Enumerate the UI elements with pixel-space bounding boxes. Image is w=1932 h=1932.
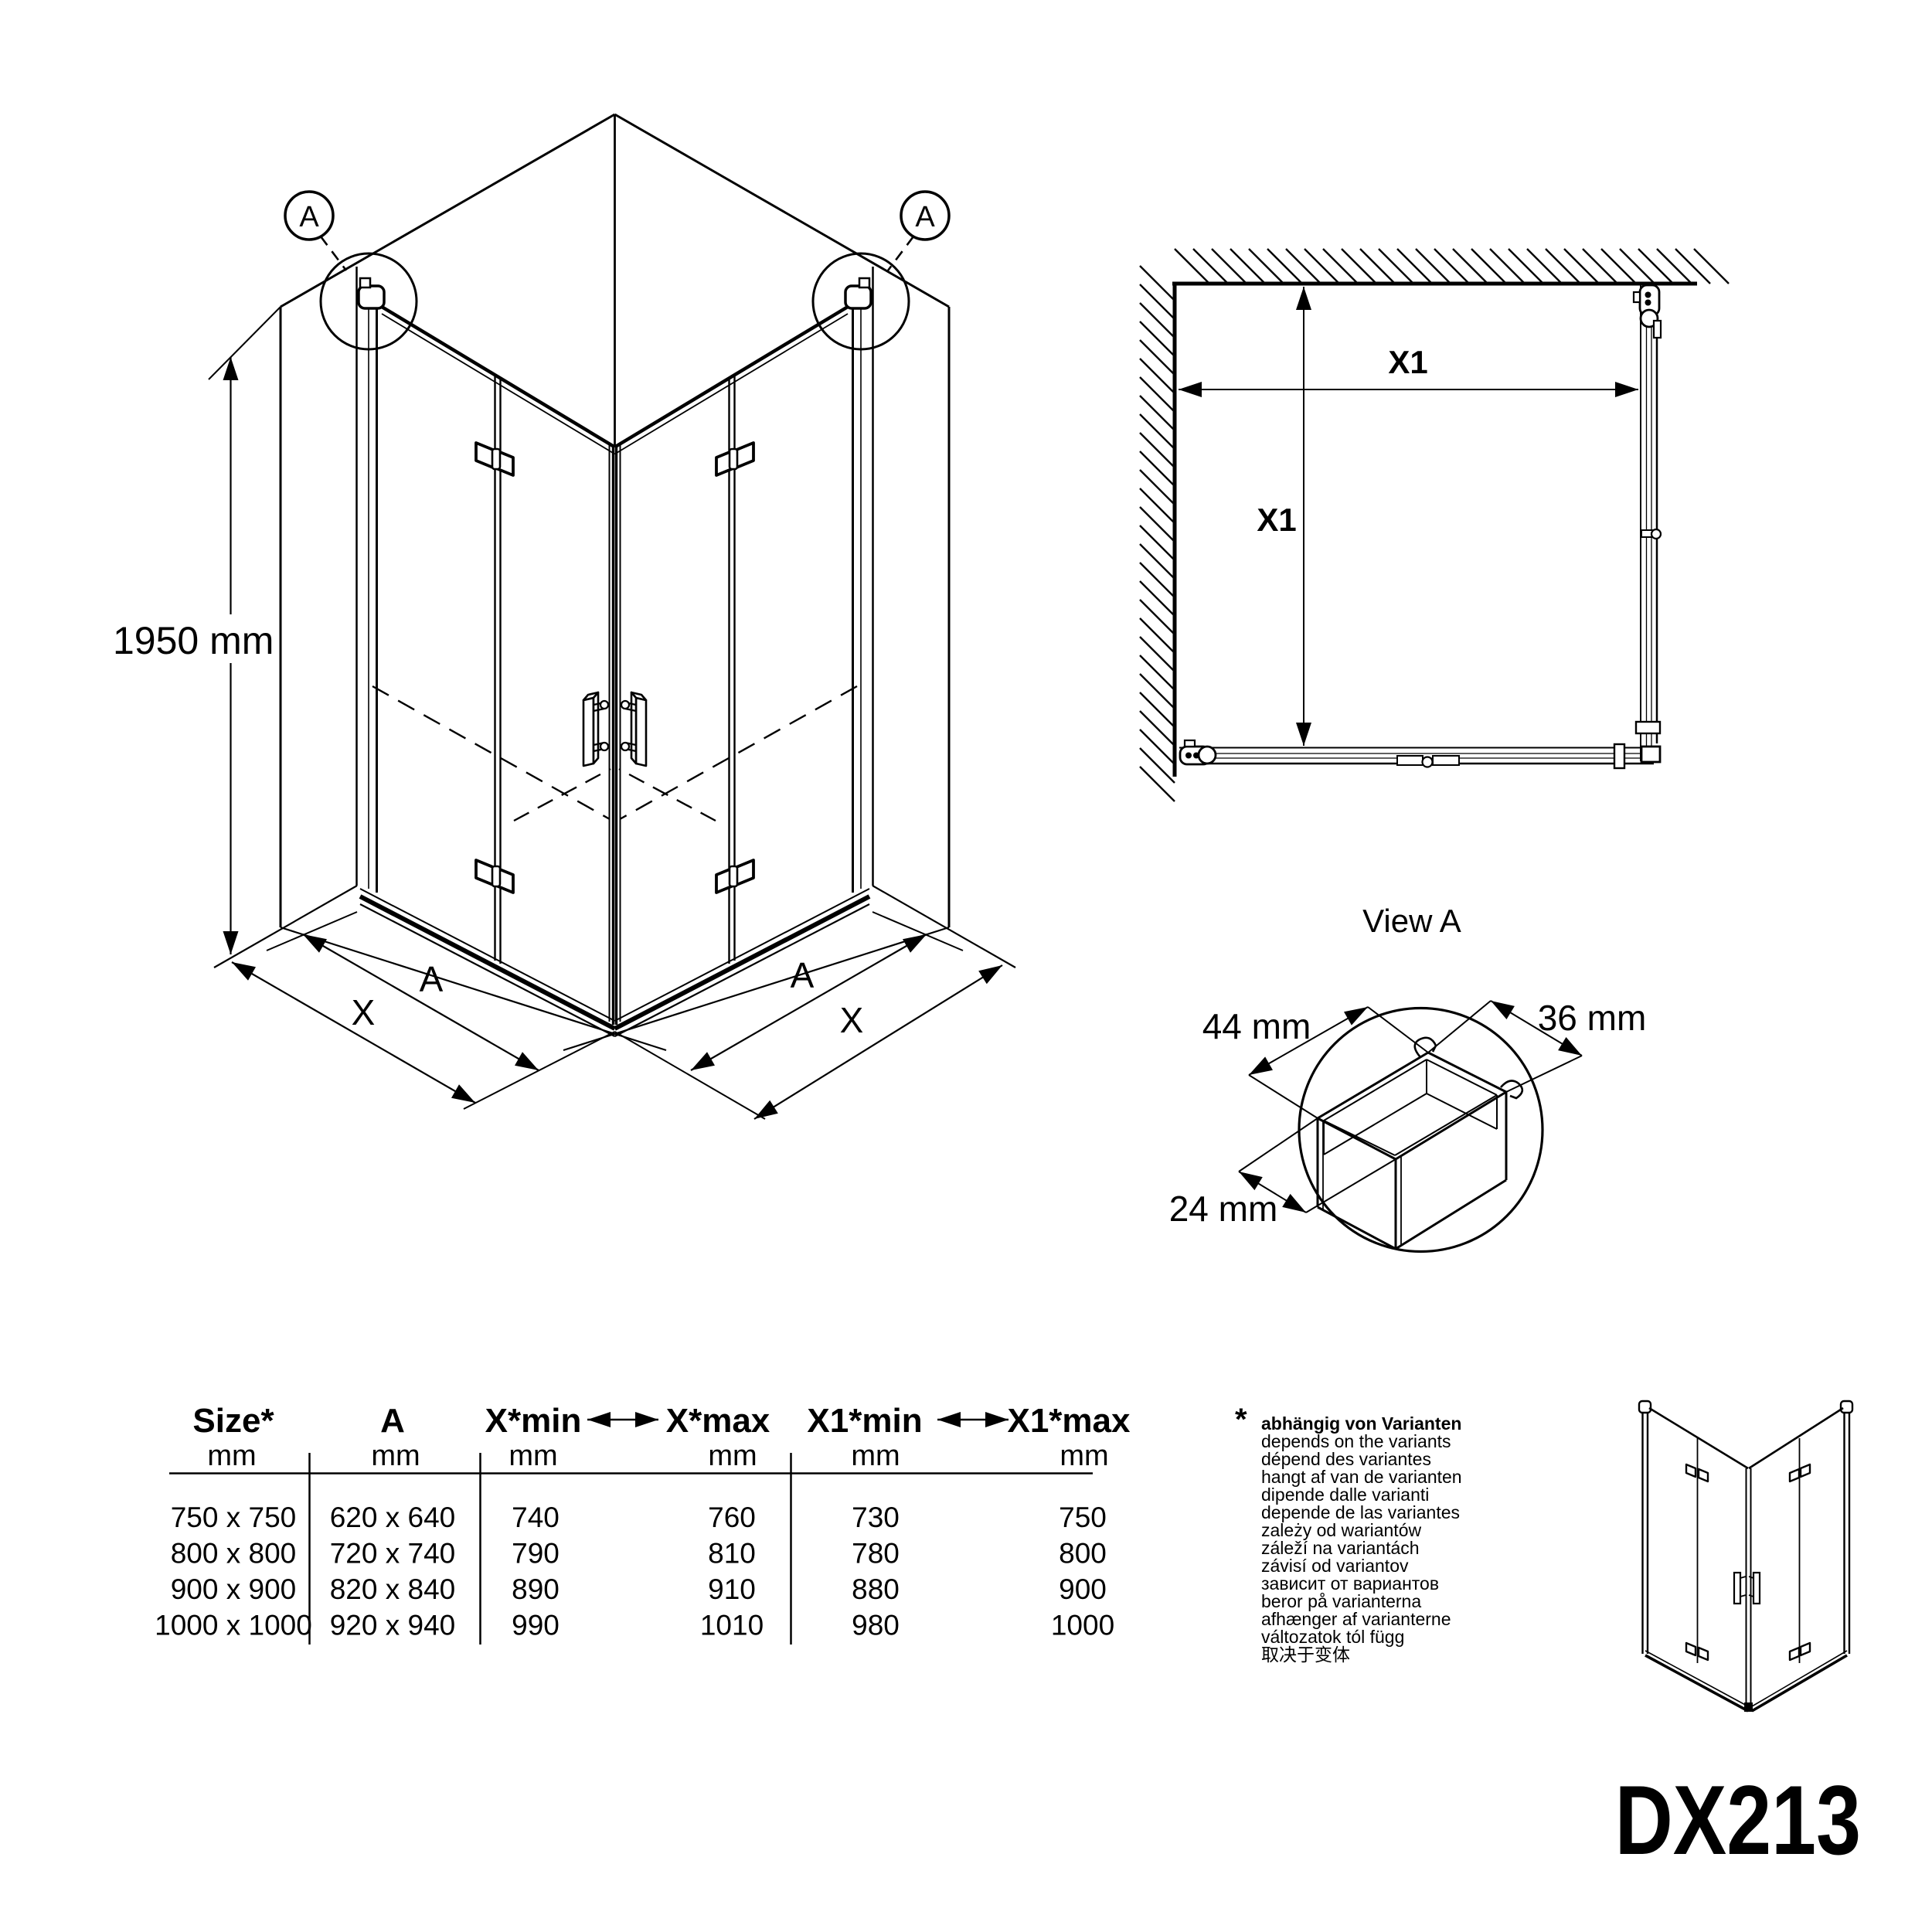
svg-text:790: 790 — [512, 1538, 560, 1570]
svg-text:720 x 740: 720 x 740 — [330, 1538, 456, 1570]
svg-text:890: 890 — [512, 1573, 560, 1605]
svg-text:A: A — [299, 201, 319, 233]
svg-text:900: 900 — [1059, 1573, 1107, 1605]
svg-text:A: A — [915, 201, 935, 233]
svg-text:730: 730 — [852, 1502, 900, 1533]
svg-text:44 mm: 44 mm — [1202, 1006, 1311, 1046]
svg-text:X: X — [840, 1000, 864, 1040]
svg-text:760: 760 — [708, 1502, 756, 1533]
svg-text:750: 750 — [1059, 1502, 1107, 1533]
svg-text:36 mm: 36 mm — [1538, 998, 1647, 1038]
svg-text:mm: mm — [207, 1440, 256, 1472]
svg-text:mm: mm — [1060, 1440, 1108, 1472]
svg-text:990: 990 — [512, 1610, 560, 1641]
svg-text:X*max: X*max — [666, 1402, 770, 1440]
svg-text:920 x 940: 920 x 940 — [330, 1610, 456, 1641]
svg-text:1950 mm: 1950 mm — [113, 619, 274, 662]
svg-text:820 x 840: 820 x 840 — [330, 1573, 456, 1605]
svg-text:780: 780 — [852, 1538, 900, 1570]
svg-text:750 x 750: 750 x 750 — [171, 1502, 297, 1533]
svg-text:910: 910 — [708, 1573, 756, 1605]
svg-text:A: A — [791, 955, 815, 995]
svg-text:24 mm: 24 mm — [1169, 1189, 1278, 1229]
svg-text:620 x 640: 620 x 640 — [330, 1502, 456, 1533]
svg-text:800: 800 — [1059, 1538, 1107, 1570]
svg-text:mm: mm — [851, 1440, 900, 1472]
svg-text:取决于变体: 取决于变体 — [1261, 1645, 1350, 1665]
svg-text:A: A — [380, 1402, 405, 1440]
svg-text:880: 880 — [852, 1573, 900, 1605]
svg-text:mm: mm — [708, 1440, 757, 1472]
svg-text:X1*max: X1*max — [1007, 1402, 1131, 1440]
svg-text:*: * — [1235, 1403, 1247, 1437]
svg-text:X1: X1 — [1257, 502, 1296, 538]
svg-text:800 x 800: 800 x 800 — [171, 1538, 297, 1570]
svg-text:740: 740 — [512, 1502, 560, 1533]
svg-text:980: 980 — [852, 1610, 900, 1641]
svg-text:900 x 900: 900 x 900 — [171, 1573, 297, 1605]
svg-text:1000: 1000 — [1051, 1610, 1114, 1641]
svg-text:1000 x 1000: 1000 x 1000 — [155, 1610, 312, 1641]
svg-text:X1*min: X1*min — [807, 1402, 922, 1440]
svg-text:X*min: X*min — [485, 1402, 582, 1440]
svg-text:mm: mm — [371, 1440, 420, 1472]
svg-text:X: X — [352, 992, 376, 1032]
svg-text:DX213: DX213 — [1615, 1765, 1861, 1875]
svg-text:1010: 1010 — [700, 1610, 764, 1641]
svg-text:View A: View A — [1362, 903, 1461, 939]
svg-text:mm: mm — [509, 1440, 557, 1472]
svg-text:Size*: Size* — [192, 1402, 274, 1440]
svg-text:A: A — [420, 959, 444, 999]
svg-text:X1: X1 — [1388, 344, 1427, 380]
svg-text:810: 810 — [708, 1538, 756, 1570]
